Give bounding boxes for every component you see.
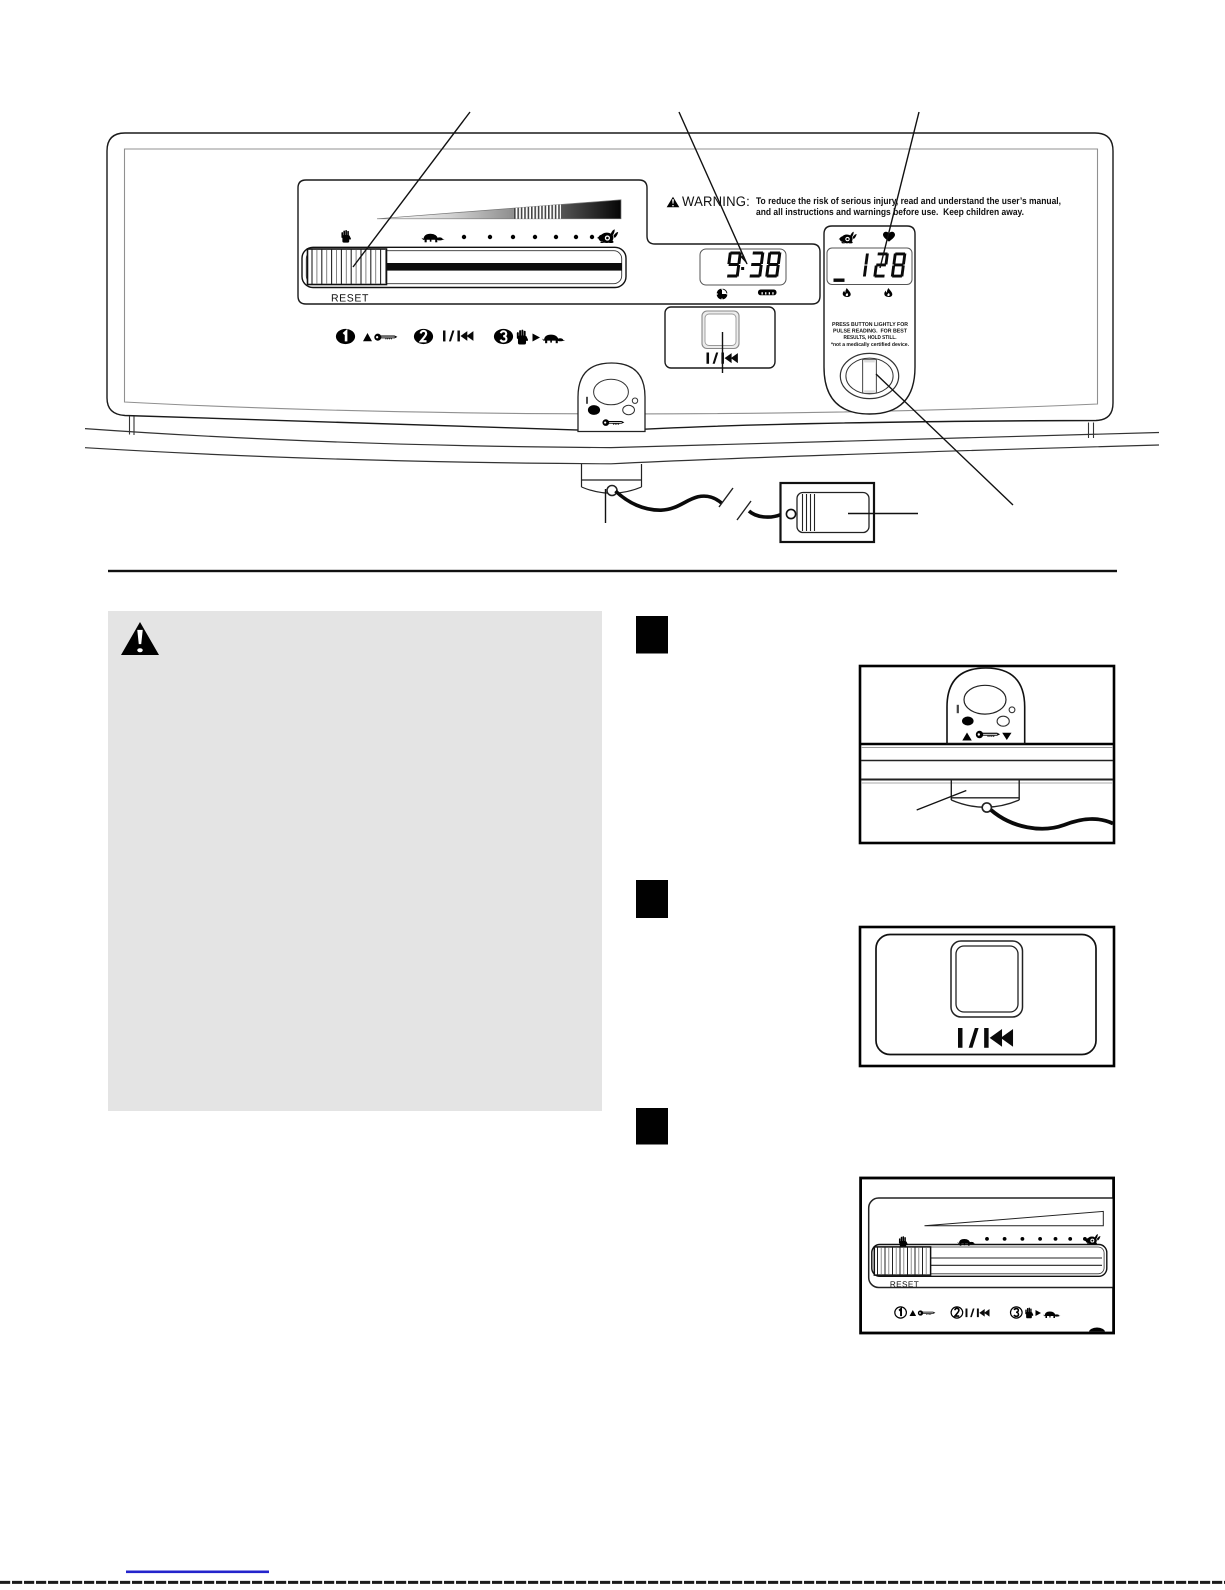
svg-text:and all instructions and warni: and all instructions and warnings before… [756,207,1024,218]
svg-text:PULSE READING. FOR BEST: PULSE READING. FOR BEST [833,328,908,334]
svg-text:To reduce the risk of serious: To reduce the risk of serious injury, re… [756,196,1061,207]
svg-text:PRESS BUTTON LIGHTLY FOR: PRESS BUTTON LIGHTLY FOR [832,322,908,328]
svg-text:RESET: RESET [890,1280,919,1289]
svg-text:*not a medically certified dev: *not a medically certified device. [831,342,909,348]
svg-text:RESET: RESET [331,293,369,305]
svg-text:RESULTS, HOLD STILL.: RESULTS, HOLD STILL. [844,335,897,341]
